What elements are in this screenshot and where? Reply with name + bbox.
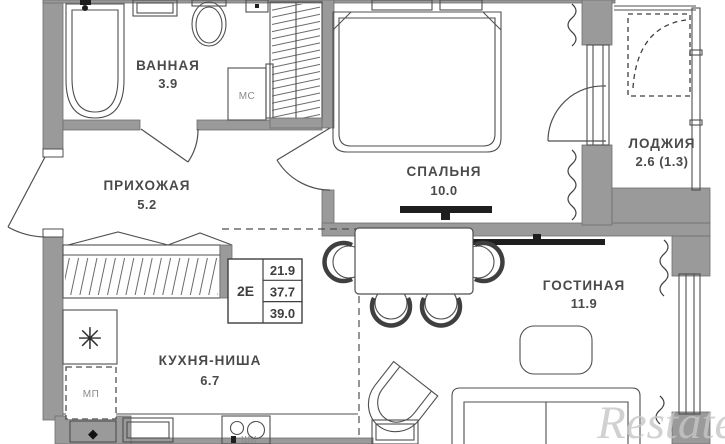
dining-table (355, 228, 473, 294)
washing-machine-label: МС (239, 91, 256, 102)
room-area-bathroom: 3.9 (158, 76, 178, 91)
room-label-bathroom: ВАННАЯ (136, 58, 200, 73)
room-label-hallway: ПРИХОЖАЯ (103, 178, 190, 193)
wall-living-right-upper (672, 236, 710, 276)
room-area-loggia: 2.6 (1.3) (636, 154, 689, 169)
apartment-type: 2Е (237, 283, 254, 299)
wall-bedroom-left-upper (322, 0, 334, 128)
appliance-slot-label: МП (83, 389, 100, 400)
room-label-kitchen: КУХНЯ-НИША (159, 353, 262, 368)
area-total: 39.0 (270, 306, 295, 321)
entrance-door (8, 157, 45, 237)
faucet-icon (80, 0, 91, 5)
closet-hatch (65, 258, 218, 295)
floorplan-drawing: МС (0, 0, 725, 444)
wall-bathroom-bottom-left (63, 120, 140, 130)
room-label-living: ГОСТИНАЯ (543, 278, 626, 293)
watermark: Restate (596, 397, 725, 444)
toilet (192, 0, 226, 46)
bedroom-door (277, 128, 330, 190)
area-table: 2Е 21.9 37.7 39.0 (228, 259, 302, 323)
living-window (679, 274, 700, 414)
area-living-sum: 21.9 (270, 263, 295, 278)
room-area-bedroom: 10.0 (430, 183, 457, 198)
balcony-window-block (587, 45, 609, 145)
entrance-jamb-top (43, 149, 63, 157)
loggia-cabinet (628, 14, 690, 96)
vent-shaft-icon: ◆ (88, 426, 98, 441)
room-area-hallway: 5.2 (137, 197, 157, 212)
wall-loggia-left-upper (582, 0, 612, 45)
entrance-jamb-bottom (43, 229, 63, 237)
room-area-living: 11.9 (571, 296, 598, 311)
squiggle-icon (568, 4, 576, 46)
fridge: ✳ (63, 310, 117, 364)
dining-set (325, 228, 503, 325)
vent-dot-icon (255, 4, 259, 8)
wall-left-upper (43, 0, 63, 157)
armchair (357, 362, 438, 444)
wall-loggia-left-lower (582, 145, 612, 225)
washing-machine-box: МС (228, 64, 273, 120)
bedroom-wardrobe (270, 2, 322, 128)
bathroom-door (141, 129, 198, 162)
room-area-kitchen: 6.7 (200, 373, 220, 388)
stove-knob-icon (231, 436, 236, 443)
wall-loggia-bottom (612, 188, 710, 223)
area-no-balcony: 37.7 (270, 285, 295, 300)
faucet-icon (82, 5, 88, 11)
bed (333, 0, 501, 152)
room-label-loggia: ЛОДЖИЯ (628, 136, 695, 151)
bathtub (66, 0, 124, 118)
balcony-door (548, 86, 606, 141)
hallway-closet (63, 232, 232, 298)
room-label-bedroom: СПАЛЬНЯ (407, 164, 482, 179)
cabinet-label: ШК (241, 435, 257, 444)
fridge-icon: ✳ (77, 323, 102, 356)
wall-left-lower (43, 235, 63, 420)
bedroom-tv (400, 206, 492, 220)
appliance-slot: МП (66, 367, 116, 419)
squiggle-icon (568, 150, 576, 220)
coffee-table (520, 326, 592, 374)
floorplan: МС (0, 0, 725, 444)
squiggle-icon (660, 240, 668, 296)
